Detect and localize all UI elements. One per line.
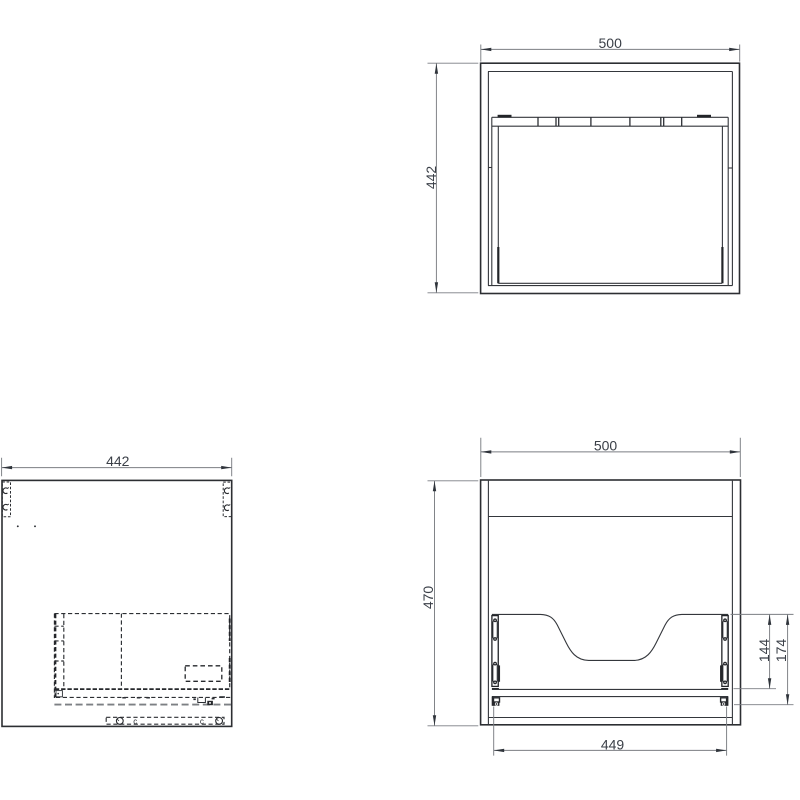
svg-text:442: 442	[423, 166, 439, 190]
svg-text:c: c	[200, 717, 204, 726]
svg-text:500: 500	[594, 438, 618, 454]
svg-text:174: 174	[773, 639, 789, 663]
svg-text:449: 449	[601, 736, 625, 752]
svg-text:144: 144	[756, 639, 772, 663]
svg-text:442: 442	[106, 453, 130, 469]
svg-text:470: 470	[420, 586, 436, 610]
svg-text:500: 500	[599, 35, 623, 51]
svg-text:c: c	[133, 717, 137, 726]
